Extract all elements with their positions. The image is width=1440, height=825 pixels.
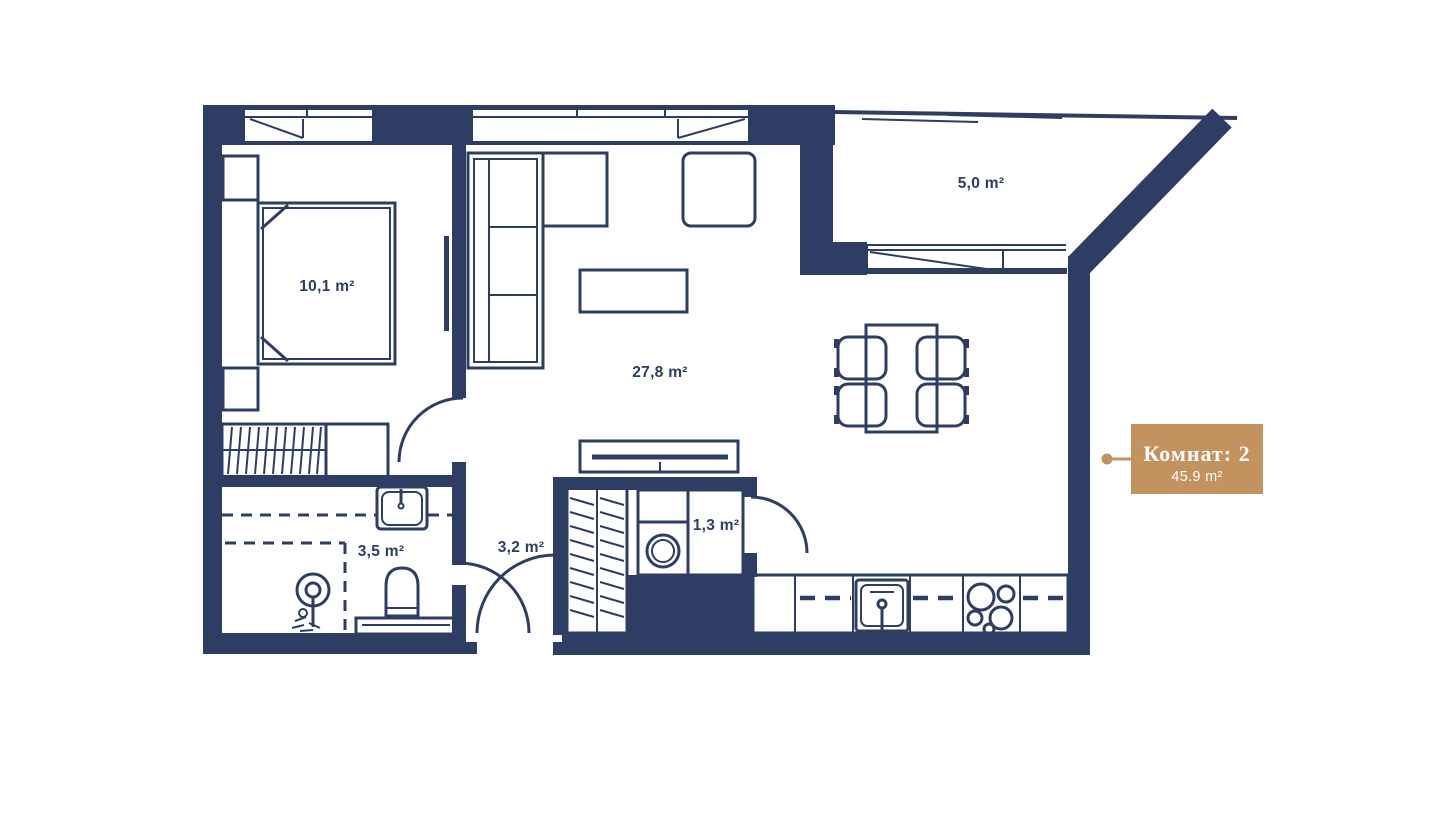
kitchen-sink-icon — [856, 580, 908, 631]
bathroom-door — [459, 563, 529, 633]
washing-machine-icon — [647, 535, 679, 567]
hallway-area-label: 3,2 m² — [498, 539, 545, 556]
living-room-area-label: 27,8 m² — [632, 364, 688, 381]
dining-chair — [838, 384, 886, 426]
stove-icon — [968, 584, 1014, 634]
balcony-area-label: 5,0 m² — [958, 175, 1005, 192]
bathroom-area-label: 3,5 m² — [358, 543, 405, 560]
badge-total-area: 45.9 m² — [1171, 469, 1222, 485]
bedroom-wardrobe — [222, 424, 326, 477]
nightstand — [223, 156, 258, 200]
washbasin — [377, 487, 427, 529]
dining-chair — [917, 384, 965, 426]
living-room — [468, 153, 969, 472]
shower-area — [225, 543, 345, 631]
toilet — [356, 568, 456, 634]
floor-plan: 10,1 m² 27,8 m² 5, — [0, 0, 1440, 825]
bedroom-window — [245, 110, 372, 141]
outer-walls — [203, 105, 1237, 655]
dining-set — [834, 325, 969, 432]
nightstand — [223, 368, 258, 410]
coffee-table — [580, 270, 687, 312]
badge-title: Комнат: 2 — [1143, 441, 1250, 466]
bedroom — [222, 156, 463, 477]
closet-door — [751, 497, 807, 553]
dining-chair — [838, 337, 886, 379]
kitchen-counter — [753, 575, 1068, 634]
sofa-chaise — [543, 153, 607, 226]
bedroom-area-label: 10,1 m² — [299, 278, 355, 295]
living-room-window — [473, 110, 748, 141]
balcony-window — [833, 245, 1067, 271]
dining-chair — [917, 337, 965, 379]
hallway — [459, 487, 627, 633]
bathroom — [222, 487, 456, 634]
shower-head-icon — [292, 574, 329, 631]
sofa — [468, 153, 543, 368]
tv-stand — [580, 441, 738, 472]
floor-plan-page: 10,1 m² 27,8 m² 5, — [0, 0, 1440, 825]
bedroom-tv — [444, 236, 449, 331]
bedroom-cabinet — [326, 424, 388, 477]
utility-area-label: 1,3 m² — [693, 517, 740, 534]
bedroom-door — [399, 398, 463, 462]
hall-wardrobe — [567, 487, 627, 633]
armchair — [683, 153, 755, 226]
rooms-badge[interactable]: Комнат: 2 45.9 m² — [1102, 424, 1264, 494]
